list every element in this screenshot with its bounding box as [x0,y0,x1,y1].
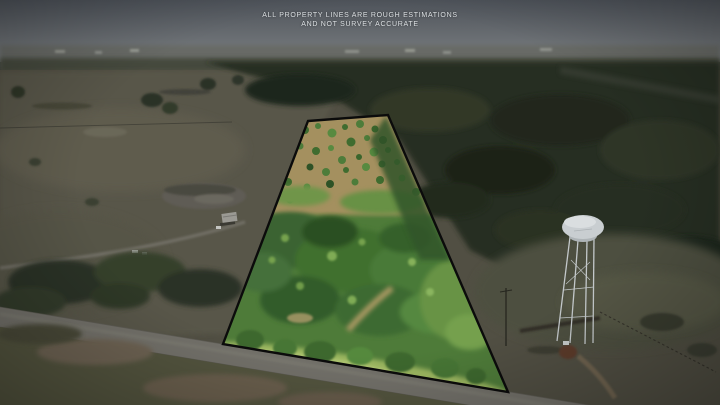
aerial-photo [0,0,720,405]
tower-tank-top [564,216,596,228]
sandy-patch [83,127,127,137]
disclaimer-text: ALL PROPERTY LINES ARE ROUGH ESTIMATIONS… [0,11,720,29]
tower-shadow [527,346,563,354]
tower-base-equipment [563,341,569,345]
disclaimer-line-1: ALL PROPERTY LINES ARE ROUGH ESTIMATIONS [0,11,720,20]
parcel-dirt-spot [287,313,313,323]
pond [162,183,246,209]
aerial-photo-frame: ALL PROPERTY LINES ARE ROUGH ESTIMATIONS… [0,0,720,405]
disclaimer-line-2: AND NOT SURVEY ACCURATE [0,20,720,29]
tower-base-red-dirt [559,345,577,359]
